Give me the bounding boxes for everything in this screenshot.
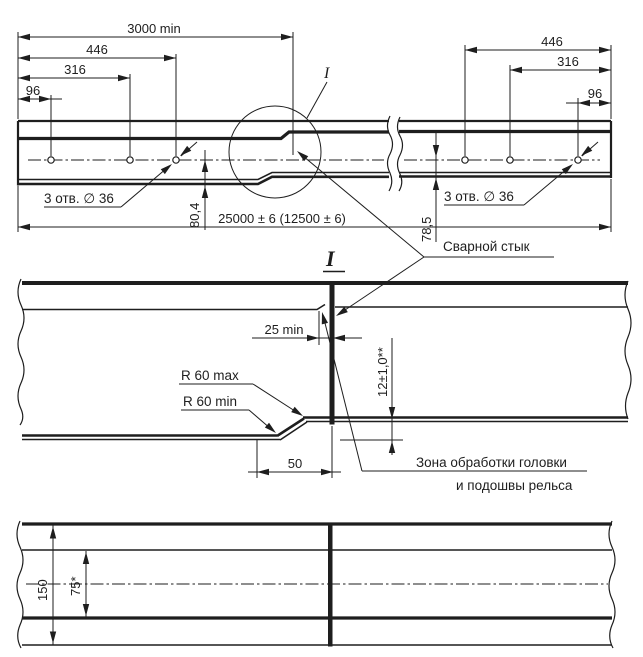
dim-96-left-text: 96 xyxy=(26,83,40,98)
dim-50: 50 xyxy=(248,426,341,478)
plan-outline xyxy=(17,521,615,648)
overall-rail-view: I 3000 min 446 xyxy=(18,21,611,319)
holes-label-left: 3 отв. ∅ 36 xyxy=(44,142,197,207)
dim-50-text: 50 xyxy=(288,456,302,471)
dim-12: 12±1,0** xyxy=(340,338,403,455)
dim-3000-text: 3000 min xyxy=(127,21,180,36)
dim-446-right-text: 446 xyxy=(541,34,563,49)
break-lines xyxy=(388,116,403,191)
dim-12-text: 12±1,0** xyxy=(375,347,390,397)
dim-78-5-text: 78,5 xyxy=(419,217,434,242)
plan-break-right xyxy=(609,521,615,648)
detail-title: I xyxy=(325,246,336,271)
dim-75: 75* xyxy=(68,551,89,617)
radius-max-text: R 60 max xyxy=(181,368,239,383)
weld-label-text: Сварной стык xyxy=(443,239,530,254)
dim-446-left: 446 xyxy=(18,42,176,61)
detail-break-right xyxy=(625,281,631,419)
rail-weld-drawing: I 3000 min 446 xyxy=(0,0,643,657)
dim-25-min-text: 25 min xyxy=(264,322,303,337)
dim-80-4: 80,4 xyxy=(187,150,208,230)
machining-zone-line1: Зона обработки головки xyxy=(416,455,567,470)
dim-316-right-text: 316 xyxy=(557,54,579,69)
dim-96-right-text: 96 xyxy=(588,86,602,101)
dim-150-text: 150 xyxy=(35,579,50,601)
dim-316-right: 316 xyxy=(510,54,611,73)
dim-length-text: 25000 ± 6 (12500 ± 6) xyxy=(218,211,346,226)
dim-96-right: 96 xyxy=(566,86,611,106)
dim-78-5: 78,5 xyxy=(419,130,439,242)
radius-min-text: R 60 min xyxy=(183,394,237,409)
dim-446-right: 446 xyxy=(465,34,611,53)
machining-zone-line2: и подошвы рельса xyxy=(456,478,573,493)
detail-I-view: I 25 min xyxy=(18,246,631,493)
detail-rail-outline xyxy=(18,279,631,440)
radius-min-callout: R 60 min xyxy=(181,394,278,435)
plan-break-left xyxy=(17,521,23,648)
technical-drawing-page: I 3000 min 446 xyxy=(0,0,643,657)
detail-mark-label: I xyxy=(323,65,330,82)
detail-leader xyxy=(307,82,327,118)
detail-break-left xyxy=(18,279,24,425)
holes-label-right: 3 отв. ∅ 36 xyxy=(444,142,598,205)
dim-80-4-text: 80,4 xyxy=(187,203,202,228)
dim-446-left-text: 446 xyxy=(86,42,108,57)
dim-96-left: 96 xyxy=(18,83,62,102)
plan-view: 150 75* xyxy=(17,521,615,648)
holes-label-left-text: 3 отв. ∅ 36 xyxy=(44,191,114,206)
dim-25-min: 25 min xyxy=(252,311,362,345)
dim-316-left-text: 316 xyxy=(64,62,86,77)
dim-316-left: 316 xyxy=(18,62,130,81)
dim-length: 25000 ± 6 (12500 ± 6) xyxy=(18,211,611,230)
dim-3000: 3000 min xyxy=(18,21,293,40)
dim-75-text: 75* xyxy=(68,576,83,596)
detail-circle xyxy=(229,106,321,198)
dim-150: 150 xyxy=(35,525,56,645)
holes-label-right-text: 3 отв. ∅ 36 xyxy=(444,189,514,204)
plan-weld-seam xyxy=(328,523,333,647)
